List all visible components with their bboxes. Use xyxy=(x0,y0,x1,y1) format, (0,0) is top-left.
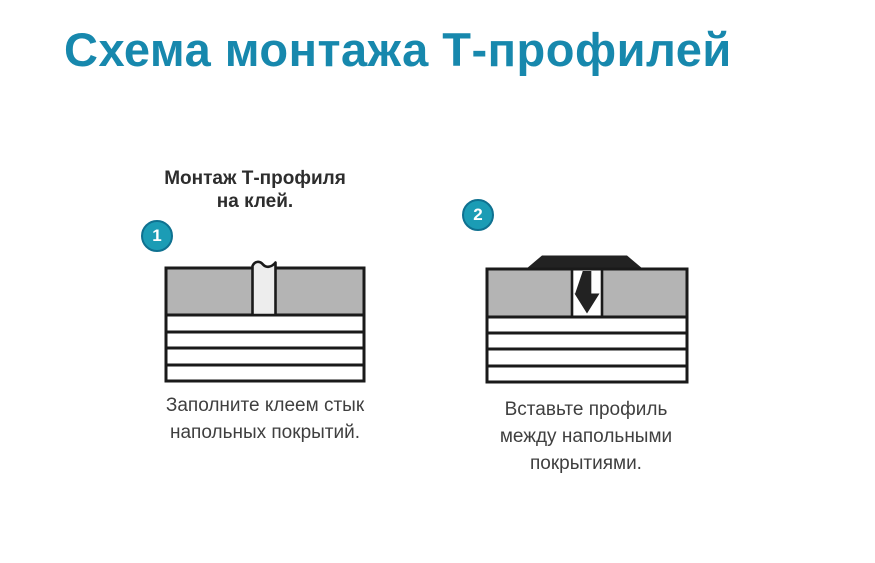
step-2-number: 2 xyxy=(473,205,482,225)
floor-cross-section-2-svg xyxy=(485,250,689,386)
page-title: Схема монтажа Т-профилей xyxy=(64,22,732,77)
step-2-caption: Вставьте профиль между напольными покрыт… xyxy=(461,396,711,477)
floor-covering-left xyxy=(489,271,572,316)
step-1-number-badge: 1 xyxy=(141,220,173,252)
step-1-caption: Заполните клеем стык напольных покрытий. xyxy=(140,392,390,446)
insert-arrow-stem xyxy=(583,271,591,296)
step-2-number-badge: 2 xyxy=(462,199,494,231)
method-heading: Монтаж Т-профиля на клей. xyxy=(148,167,362,213)
step-2-caption-line1: Вставьте профиль xyxy=(461,396,711,423)
diagram-step-2-profile-insert xyxy=(485,250,689,391)
step-1-number: 1 xyxy=(152,226,161,246)
floor-cross-section-1-svg xyxy=(164,258,366,384)
step-1-caption-line2: напольных покрытий. xyxy=(140,419,390,446)
glue-filled-seam xyxy=(253,262,276,315)
floor-covering-left xyxy=(168,270,253,314)
floor-covering-right xyxy=(276,270,363,314)
method-heading-line2: на клей. xyxy=(148,190,362,213)
step-2-caption-line2: между напольными xyxy=(461,423,711,450)
infographic-canvas: Схема монтажа Т-профилей Монтаж Т-профил… xyxy=(0,0,875,563)
step-1-caption-line1: Заполните клеем стык xyxy=(140,392,390,419)
method-heading-line1: Монтаж Т-профиля xyxy=(148,167,362,190)
step-2-caption-line3: покрытиями. xyxy=(461,450,711,477)
floor-covering-right xyxy=(603,271,686,316)
t-profile-cap xyxy=(526,256,643,270)
diagram-step-1-glue-seam xyxy=(164,258,366,389)
